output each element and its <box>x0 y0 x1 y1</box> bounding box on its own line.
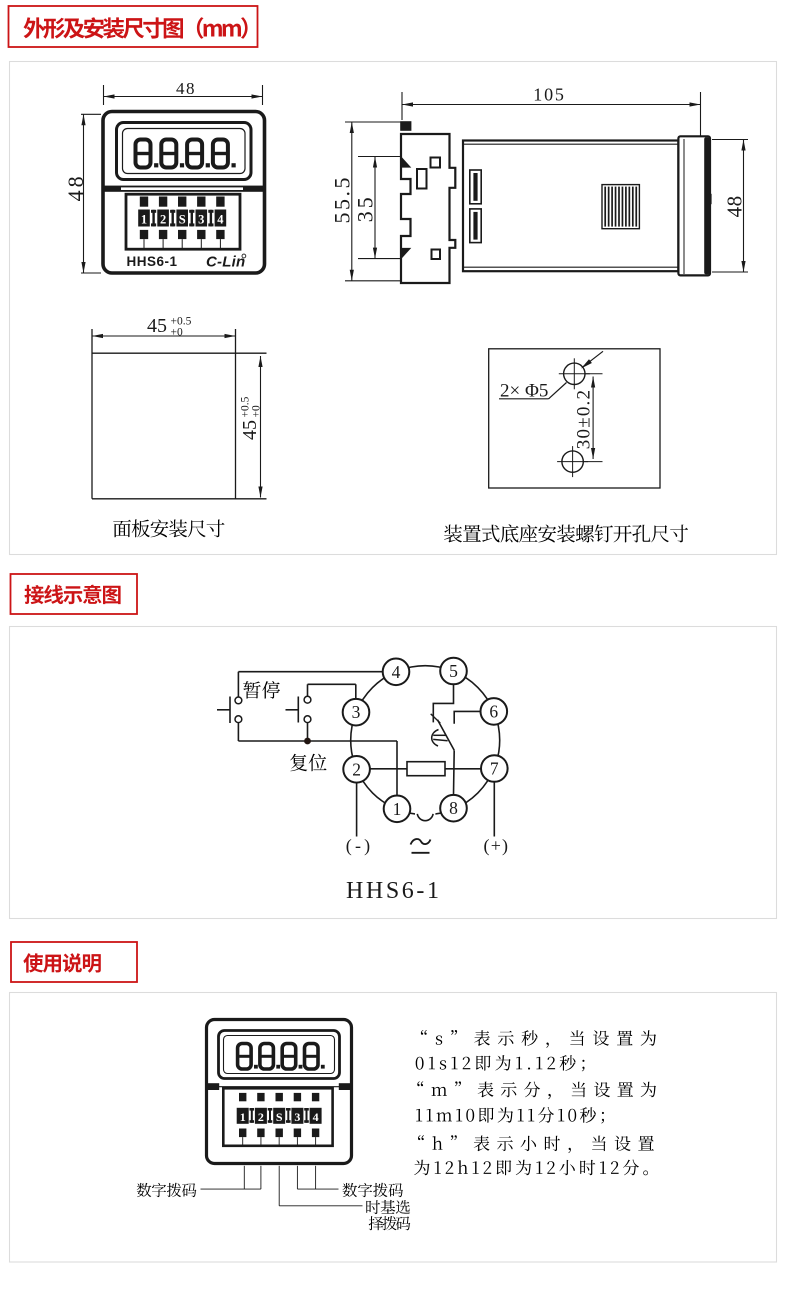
svg-text:HHS6-1: HHS6-1 <box>127 254 178 269</box>
svg-text:S: S <box>276 1110 283 1124</box>
svg-text:30±0.2: 30±0.2 <box>573 389 594 449</box>
svg-text:3: 3 <box>294 1110 300 1124</box>
svg-text:48: 48 <box>63 173 88 201</box>
svg-text:2× Φ5: 2× Φ5 <box>500 380 548 401</box>
svg-text:55.5: 55.5 <box>330 175 355 224</box>
svg-text:5: 5 <box>449 661 458 681</box>
svg-text:4: 4 <box>313 1110 319 1124</box>
svg-text:(+): (+) <box>484 836 510 857</box>
svg-text:48: 48 <box>176 79 196 98</box>
svg-text:6: 6 <box>489 701 498 721</box>
svg-text:3: 3 <box>198 213 204 227</box>
svg-text:S: S <box>179 213 186 227</box>
svg-text:2: 2 <box>352 759 361 779</box>
svg-text:HHS6-1: HHS6-1 <box>346 878 442 904</box>
svg-text:35: 35 <box>352 194 377 222</box>
svg-text:4: 4 <box>217 213 224 227</box>
svg-text:2: 2 <box>160 213 166 227</box>
svg-text:105: 105 <box>533 85 565 105</box>
svg-text:+0: +0 <box>171 327 183 339</box>
svg-text:4: 4 <box>392 662 401 682</box>
svg-text:8: 8 <box>449 798 458 818</box>
svg-text:45: 45 <box>239 420 261 440</box>
svg-text:3: 3 <box>352 702 361 722</box>
svg-text:2: 2 <box>258 1110 264 1124</box>
svg-text:7: 7 <box>490 759 499 779</box>
svg-text:C-Lin: C-Lin <box>206 253 245 270</box>
svg-text:48: 48 <box>723 195 747 217</box>
svg-text:45: 45 <box>147 315 167 337</box>
svg-text:1: 1 <box>393 799 402 819</box>
svg-text:1: 1 <box>141 213 147 227</box>
svg-text:+0: +0 <box>251 405 263 417</box>
svg-text:1: 1 <box>240 1110 246 1124</box>
svg-text:(-): (-) <box>346 836 374 857</box>
